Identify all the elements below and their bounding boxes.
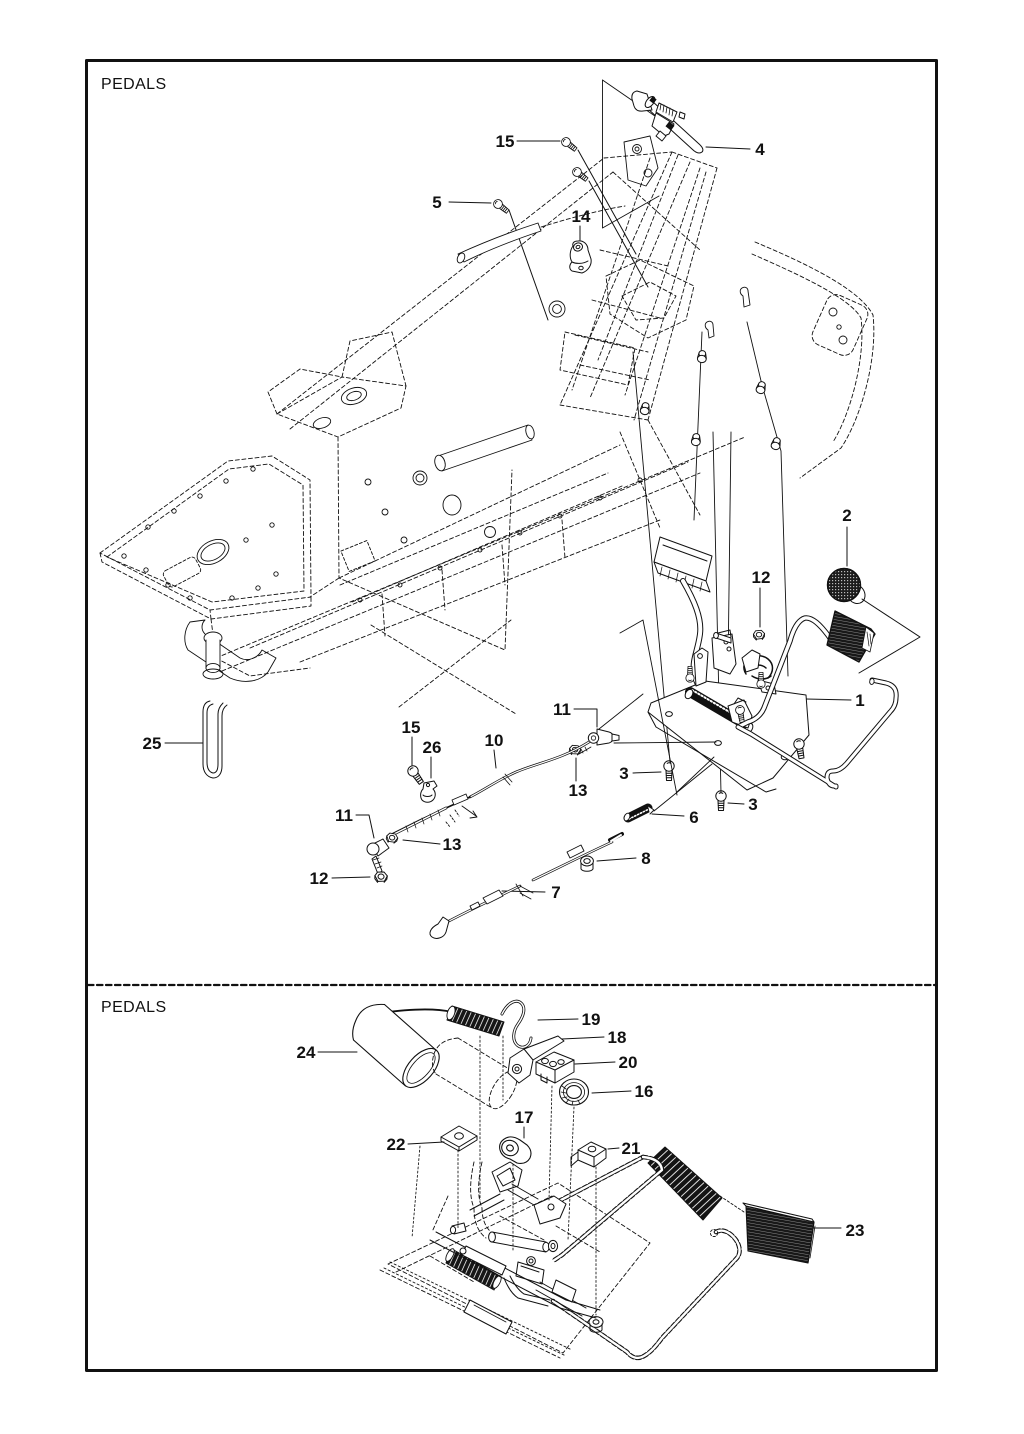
svg-text:14: 14	[572, 207, 591, 226]
svg-text:PEDALS: PEDALS	[101, 76, 167, 93]
svg-text:18: 18	[608, 1028, 627, 1047]
svg-text:15: 15	[402, 718, 421, 737]
svg-text:13: 13	[443, 835, 462, 854]
svg-text:11: 11	[553, 700, 571, 719]
svg-text:2: 2	[842, 506, 851, 525]
svg-text:15: 15	[496, 132, 515, 151]
svg-text:3: 3	[748, 795, 757, 814]
svg-text:8: 8	[641, 849, 650, 868]
svg-text:17: 17	[515, 1108, 534, 1127]
svg-text:6: 6	[689, 808, 698, 827]
svg-text:19: 19	[582, 1010, 601, 1029]
svg-text:24: 24	[297, 1043, 316, 1062]
svg-text:1: 1	[855, 691, 864, 710]
svg-text:21: 21	[622, 1139, 641, 1158]
svg-text:23: 23	[846, 1221, 865, 1240]
svg-text:PEDALS: PEDALS	[101, 999, 167, 1016]
svg-text:11: 11	[335, 806, 353, 825]
svg-text:12: 12	[310, 869, 329, 888]
svg-text:12: 12	[752, 568, 771, 587]
svg-text:5: 5	[432, 193, 441, 212]
svg-text:20: 20	[619, 1053, 638, 1072]
svg-text:10: 10	[485, 731, 504, 750]
svg-text:22: 22	[387, 1135, 406, 1154]
svg-text:13: 13	[569, 781, 588, 800]
svg-text:4: 4	[755, 140, 765, 159]
svg-text:3: 3	[619, 764, 628, 783]
svg-text:25: 25	[143, 734, 162, 753]
svg-text:7: 7	[551, 883, 560, 902]
svg-text:26: 26	[423, 738, 442, 757]
svg-text:16: 16	[635, 1082, 654, 1101]
